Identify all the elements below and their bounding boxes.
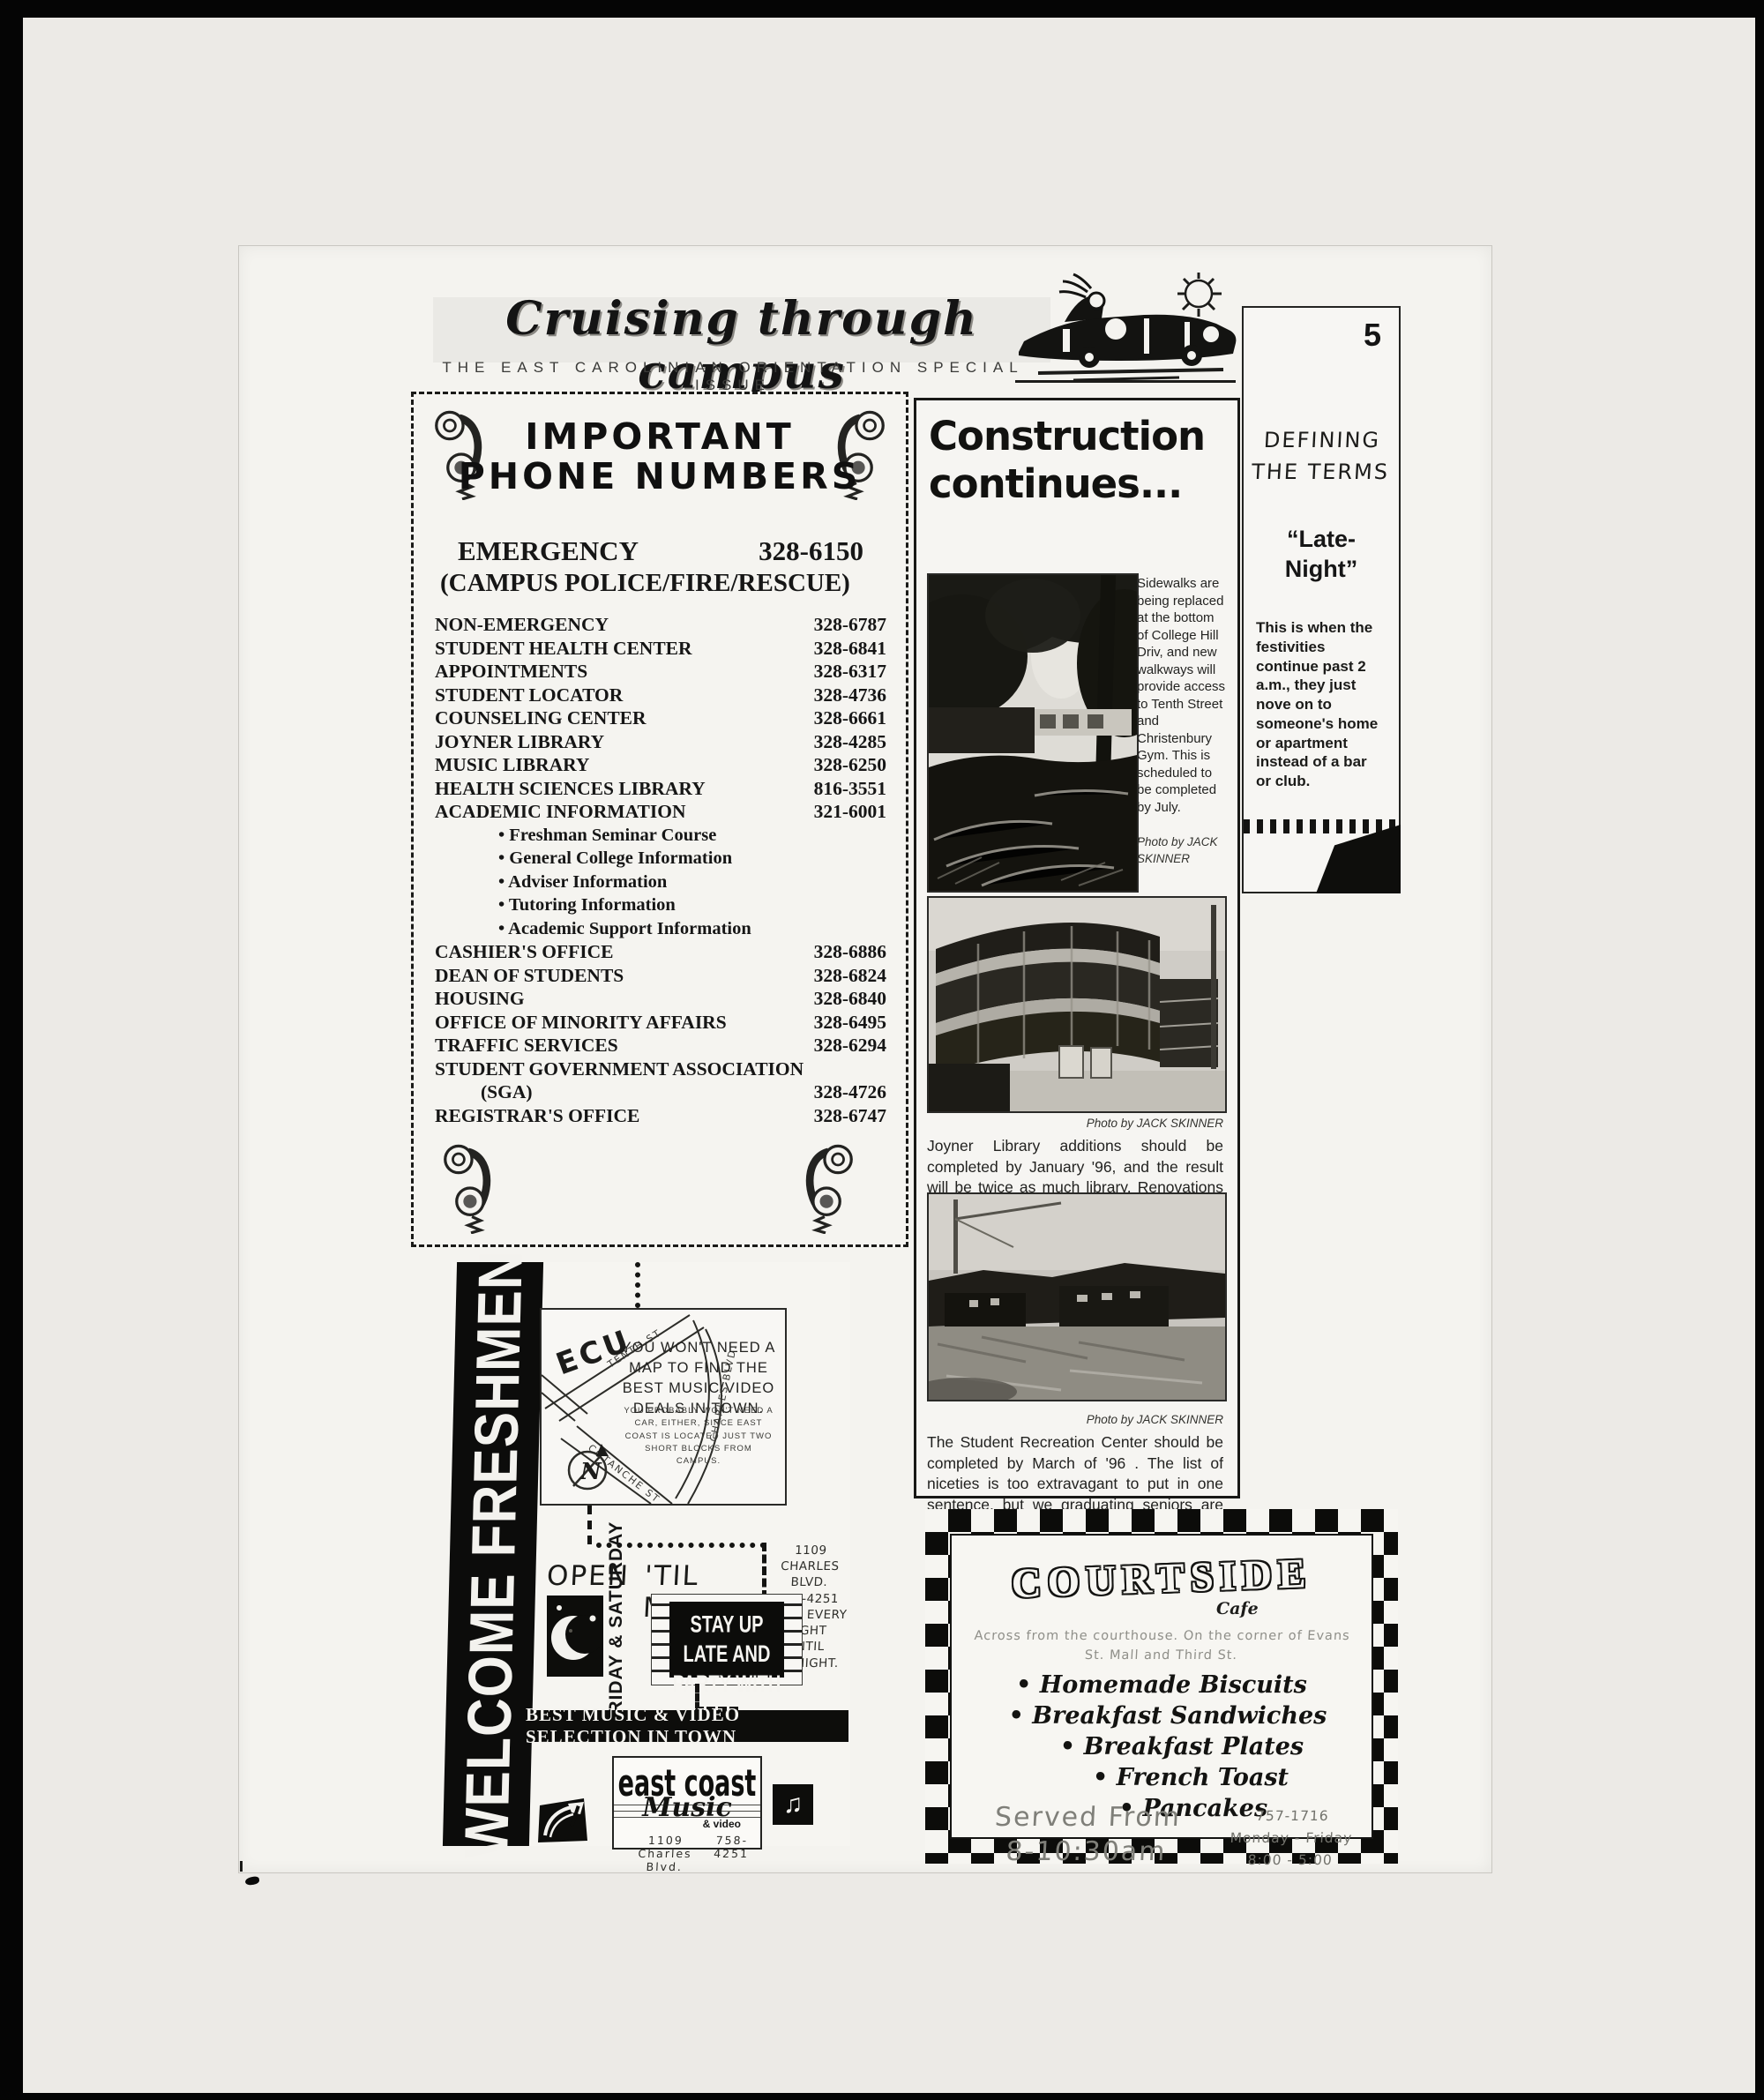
courtside-location: Across from the courthouse. On the corne…	[951, 1627, 1372, 1666]
phone-label: HOUSING	[435, 987, 525, 1011]
phone-label: JOYNER LIBRARY	[435, 730, 604, 754]
phone-number: 328-6747	[814, 1104, 886, 1128]
phone-row: STUDENT LOCATOR328-4736	[435, 684, 886, 707]
marquee-lines-right	[782, 1603, 802, 1676]
phone-row: TRAFFIC SERVICES328-6294	[435, 1034, 886, 1057]
phone-row: COUNSELING CENTER328-6661	[435, 706, 886, 730]
phone-row: OFFICE OF MINORITY AFFAIRS328-6495	[435, 1011, 886, 1035]
phone-number: 328-4736	[814, 684, 886, 707]
phone-label: APPOINTMENTS	[435, 660, 587, 684]
phone-number: 328-6787	[814, 613, 886, 637]
friday-saturday-vertical-label: FRIDAY & SATURDAY	[603, 1527, 630, 1721]
served-line2: 8-10:30am	[1005, 1836, 1168, 1867]
telephone-icon	[789, 1142, 862, 1234]
photo-joyner-library-construction	[927, 896, 1227, 1113]
welcome-freshmen-text: WELCOME FRESHMEN	[450, 1250, 536, 1857]
phone-row: STUDENT HEALTH CENTER328-6841	[435, 637, 886, 661]
courtside-phone: 757-1716	[1256, 1808, 1330, 1824]
menu-item: • French Toast	[952, 1762, 1372, 1793]
marquee-lines-left	[652, 1603, 671, 1676]
logo-address-row: 1109 Charles Blvd. 758-4251	[613, 1830, 762, 1873]
phone-label: COUNSELING CENTER	[435, 706, 647, 730]
phone-label: REGISTRAR'S OFFICE	[435, 1104, 639, 1128]
courtside-serving-hours: Served From 8-10:30am	[992, 1800, 1182, 1869]
phone-title-line2: PHONE NUMBERS	[459, 455, 862, 497]
phone-label: NON-EMERGENCY	[435, 613, 609, 637]
phonograph-icon	[536, 1797, 591, 1844]
phone-row: REGISTRAR'S OFFICE328-6747	[435, 1104, 886, 1128]
courtside-phone-block: 757-1716 Monday - Friday 8:00 - 5:00	[1223, 1805, 1359, 1871]
header-rule	[1015, 380, 1236, 383]
courtside-name: COURTSIDE	[951, 1548, 1372, 1610]
sga-label-row: STUDENT GOVERNMENT ASSOCIATION	[435, 1057, 886, 1081]
telephone-icon	[435, 1142, 507, 1234]
term-line2: Night”	[1285, 556, 1357, 582]
folded-corner-decoration	[1316, 825, 1401, 893]
headline-line1: Construction	[929, 413, 1205, 460]
academic-bullet: • Freshman Seminar Course	[435, 824, 886, 848]
car-illustration-icon	[1012, 271, 1246, 385]
phone-number: 328-6841	[814, 637, 886, 661]
logo-phone: 758-4251	[708, 1834, 754, 1873]
term-line1: “Late-	[1287, 526, 1356, 552]
phone-label: ACADEMIC INFORMATION	[435, 800, 685, 824]
photo3-credit: Photo by JACK SKINNER	[927, 1413, 1223, 1426]
torn-edge-decoration	[1244, 819, 1399, 833]
photo1-caption: Sidewalks are being replaced at the bott…	[1137, 576, 1225, 815]
defining-heading-line1: DEFINING	[1263, 428, 1381, 452]
emergency-label: EMERGENCY	[458, 535, 639, 567]
phone-number: 328-6317	[814, 660, 886, 684]
scan-artifact	[240, 1861, 243, 1872]
phone-number: 328-6661	[814, 706, 886, 730]
term-definition: This is when the festivities continue pa…	[1256, 618, 1385, 791]
menu-item: • Breakfast Sandwiches	[952, 1700, 1372, 1731]
phone-row: CASHIER'S OFFICE328-6886	[435, 940, 886, 964]
photo-student-recreation-center	[927, 1192, 1227, 1401]
academic-bullet: • Academic Support Information	[435, 917, 886, 941]
defining-heading-line2: THE TERMS	[1251, 460, 1389, 484]
courtside-days: Monday - Friday	[1230, 1830, 1353, 1846]
important-phone-numbers-box: IMPORTANT PHONE NUMBERS EMERGENCY 328-61…	[411, 392, 908, 1247]
emergency-row: EMERGENCY 328-6150	[458, 535, 863, 567]
phone-number: 328-6250	[814, 753, 886, 777]
moon-icon	[547, 1596, 603, 1677]
menu-item: • Homemade Biscuits	[952, 1670, 1372, 1700]
best-selection-text: BEST MUSIC & VIDEO SELECTION IN TOWN	[526, 1704, 848, 1748]
page-number: 5	[1364, 317, 1381, 354]
phone-number: 328-6495	[814, 1011, 886, 1035]
marquee-sign: STAY UP LATE AND PARTY WITH US 1109 Char…	[651, 1594, 803, 1685]
phone-label: CASHIER'S OFFICE	[435, 940, 614, 964]
phone-number: 816-3551	[814, 777, 886, 801]
phone-row: HOUSING328-6840	[435, 987, 886, 1011]
phone-row: ACADEMIC INFORMATION321-6001	[435, 800, 886, 824]
friday-saturday-text: FRIDAY & SATURDAY	[606, 1521, 627, 1727]
academic-bullet: • General College Information	[435, 847, 886, 871]
served-line1: Served From	[994, 1802, 1182, 1833]
campus-map: ECU TENTH ST COTANCHE ST CHARLES BLVD. N…	[540, 1308, 787, 1506]
phone-label: DEAN OF STUDENTS	[435, 964, 624, 988]
phone-row: MUSIC LIBRARY328-6250	[435, 753, 886, 777]
article-headline: Construction continues...	[929, 413, 1220, 508]
photo1-caption-block: Sidewalks are being replaced at the bott…	[1137, 575, 1227, 868]
logo-address: 1109 Charles Blvd.	[620, 1834, 711, 1873]
defining-terms-box: 5 DEFINING THE TERMS “Late- Night” This …	[1242, 306, 1401, 893]
courtside-cafe-script: Cafe	[1216, 1599, 1259, 1618]
phone-number: 321-6001	[814, 800, 886, 824]
scanned-newspaper-page: Cruising through campus THE EAST CAROLIN…	[0, 0, 1764, 2100]
newspaper-page: Cruising through campus THE EAST CAROLIN…	[238, 245, 1492, 1873]
welcome-freshmen-banner: WELCOME FRESHMEN	[443, 1262, 543, 1846]
dotted-connector	[635, 1262, 640, 1308]
phone-title-line1: IMPORTANT	[525, 415, 794, 458]
east-coast-music-ad: WELCOME FRESHMEN ECU TENTH ST COTANCHE S…	[452, 1262, 850, 1846]
page-subtitle: THE EAST CAROLINIAN ORIENTATION SPECIAL …	[415, 359, 1050, 394]
phone-number: 328-6886	[814, 940, 886, 964]
phone-label: STUDENT HEALTH CENTER	[435, 637, 692, 661]
academic-bullet: • Adviser Information	[435, 871, 886, 894]
phone-row: APPOINTMENTS328-6317	[435, 660, 886, 684]
phone-number: 328-4285	[814, 730, 886, 754]
courtside-inner-panel: COURTSIDE Cafe Across from the courthous…	[950, 1534, 1373, 1839]
phone-row: NON-EMERGENCY328-6787	[435, 613, 886, 637]
marquee-line1: STAY UP LATE AND	[684, 1611, 771, 1667]
phone-number: 328-4726	[814, 1080, 886, 1104]
photo1-credit: Photo by JACK SKINNER	[1137, 835, 1218, 866]
phone-directory-list: NON-EMERGENCY328-6787 STUDENT HEALTH CEN…	[435, 613, 886, 1127]
scan-background: Cruising through campus THE EAST CAROLIN…	[23, 18, 1755, 2093]
headline-line2: continues...	[929, 460, 1182, 507]
best-selection-bar: BEST MUSIC & VIDEO SELECTION IN TOWN	[526, 1710, 848, 1742]
map-compass-n: N	[579, 1459, 602, 1485]
courtside-hours: 8:00 - 5:00	[1247, 1852, 1333, 1868]
east-coast-music-logo: east coast Music & video 1109 Charles Bl…	[612, 1756, 762, 1850]
phone-label: TRAFFIC SERVICES	[435, 1034, 618, 1057]
dashed-connector	[587, 1506, 592, 1544]
phone-label: MUSIC LIBRARY	[435, 753, 589, 777]
photo-sidewalk-construction	[927, 573, 1139, 893]
phone-box-title: IMPORTANT PHONE NUMBERS	[414, 417, 906, 497]
menu-item: • Breakfast Plates	[952, 1731, 1372, 1762]
phone-row: JOYNER LIBRARY328-4285	[435, 730, 886, 754]
phone-label: HEALTH SCIENCES LIBRARY	[435, 777, 706, 801]
logo-east-coast: east coast	[614, 1763, 760, 1805]
scan-artifact	[244, 1876, 259, 1886]
phone-number: 328-6824	[814, 964, 886, 988]
emergency-subtitle: (CAMPUS POLICE/FIRE/RESCUE)	[440, 569, 881, 598]
academic-bullet: • Tutoring Information	[435, 893, 886, 917]
phone-row: DEAN OF STUDENTS328-6824	[435, 964, 886, 988]
defining-terms-heading: DEFINING THE TERMS	[1242, 424, 1401, 488]
phone-number: 328-6840	[814, 987, 886, 1011]
marquee-panel: STAY UP LATE AND PARTY WITH US 1109 Char…	[669, 1602, 784, 1678]
phone-label: STUDENT LOCATOR	[435, 684, 623, 707]
sga-number-row: (SGA)328-4726	[435, 1080, 886, 1104]
music-note-icon: ♫	[773, 1784, 813, 1825]
phone-label: OFFICE OF MINORITY AFFAIRS	[435, 1011, 727, 1035]
sga-abbreviation: (SGA)	[481, 1080, 533, 1104]
emergency-number: 328-6150	[759, 535, 863, 567]
photo2-credit: Photo by JACK SKINNER	[927, 1117, 1223, 1130]
phone-number: 328-6294	[814, 1034, 886, 1057]
phone-row: HEALTH SCIENCES LIBRARY816-3551	[435, 777, 886, 801]
construction-article-box: Construction continues...	[914, 398, 1240, 1498]
courtside-cafe-ad: COURTSIDE Cafe Across from the courthous…	[925, 1509, 1398, 1864]
map-subtext: YOU PROBABLY WON'T NEED A CAR, EITHER, S…	[623, 1405, 774, 1468]
defined-term: “Late- Night”	[1244, 525, 1399, 585]
